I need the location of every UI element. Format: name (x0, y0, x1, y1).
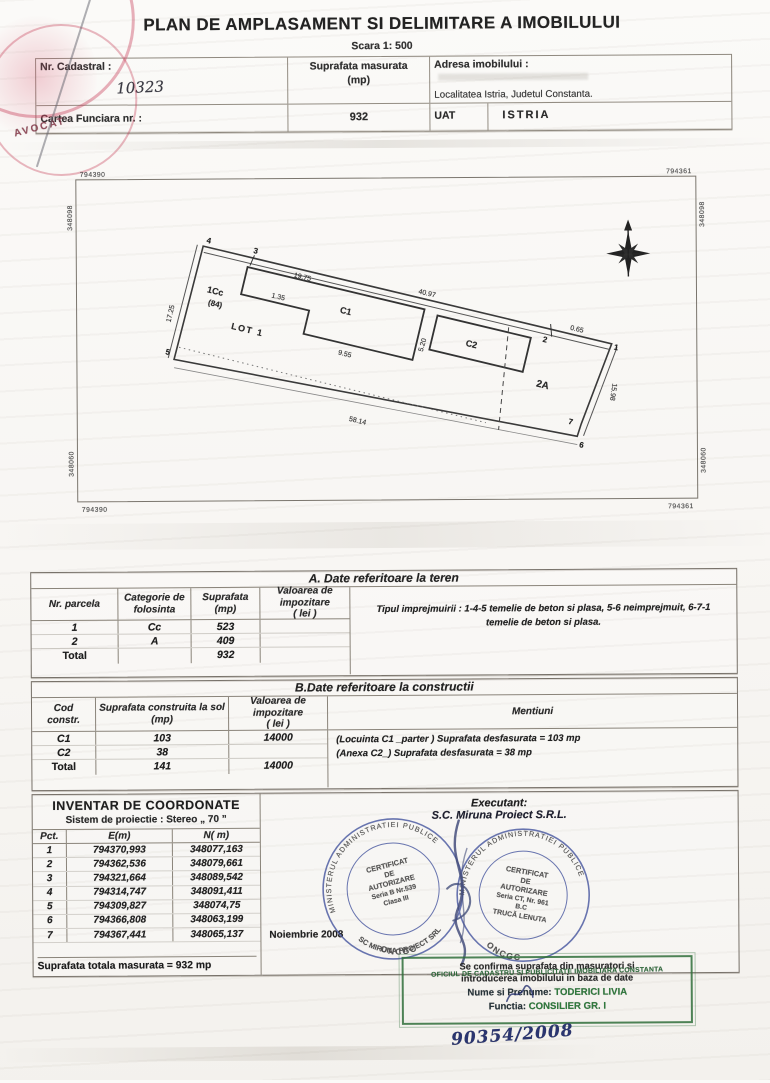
point-3: 3 (253, 246, 260, 256)
dim-right: 15.98 (608, 383, 618, 401)
grid-label-top-left-e: 794390 (80, 172, 106, 179)
cell: 1 (31, 621, 118, 635)
north-compass-icon (606, 219, 650, 276)
c2-label: C2 (465, 338, 479, 350)
grid-label-top-left-n: 348098 (67, 205, 74, 231)
lot-label: LOT 1 (230, 321, 264, 338)
header-col-cadastral: Nr. Cadastral : 10323 Cartea Funciara nr… (36, 58, 288, 134)
grid-label-bottom-left-e: 794390 (82, 507, 108, 514)
table-row-total: Total 932 (32, 647, 350, 664)
cell: 7 (33, 929, 67, 942)
fence-line-top (204, 252, 610, 349)
suprafata-value: 932 (288, 111, 429, 124)
scale-label: Scara 1: 500 (0, 38, 767, 55)
coord-row: 1794370,993348077,163 (33, 843, 260, 859)
dim-c1-right: 5.20 (418, 337, 429, 352)
cell: 794370,993 (67, 843, 173, 857)
coord-row: 3794321,664348089,542 (33, 871, 260, 887)
coordinates-panel: INVENTAR DE COORDONATE Sistem de proiect… (33, 794, 262, 976)
suprafata-unit: (mp) (288, 74, 429, 89)
projection-system: Sistem de proiectie : Stereo „ 70 ” (33, 812, 260, 830)
cell: Cc (118, 620, 191, 633)
cell: 38 (96, 745, 229, 759)
header-col-suprafata: Suprafata masurata (mp) 932 (288, 57, 430, 132)
nr-cadastral-label: Nr. Cadastral : (36, 58, 287, 76)
grid-label-bottom-left-n: 348060 (68, 451, 75, 477)
scan-streak (0, 138, 768, 151)
scan-streak (3, 1045, 603, 1063)
building-c2 (429, 316, 531, 372)
cell: 348077,163 (173, 843, 260, 857)
zone2-label: 2A (535, 379, 550, 393)
cell: 794321,664 (67, 872, 173, 886)
executant-panel: Executant: S.C. Miruna Proiect S.R.L. No… (261, 791, 739, 975)
cartea-funciara-label: Cartea Funciara nr. : (36, 105, 287, 128)
dim-line-bottom (174, 349, 577, 463)
table-row-total: Total 141 14000 (32, 758, 327, 775)
cell: 103 (96, 731, 229, 745)
cell: 523 (191, 620, 260, 633)
cell (119, 648, 192, 663)
coord-row: 6794366,808348063,199 (33, 914, 260, 930)
point-7: 7 (567, 417, 574, 427)
uat-label: UAT (430, 103, 488, 130)
table-a-header: Valoarea de impozitare ( lei ) (260, 587, 349, 619)
dim-near-p2: 0.65 (569, 325, 584, 335)
confirmation-name-line: Nume si Prenume: TODERICI LIVIA (404, 986, 691, 999)
cell: 3 (33, 872, 67, 885)
table-b: B.Date referitoare la constructii Cod co… (31, 677, 739, 791)
cell: 6 (33, 915, 67, 928)
uat-value: ISTRIA (488, 102, 731, 130)
dim-c1-width: 19.75 (293, 272, 312, 283)
c1-label: C1 (339, 305, 353, 317)
coord-row: 2794362,536348079,661 (33, 857, 260, 873)
function-value: CONSILIER GR. I (529, 1001, 606, 1012)
cell: 348079,661 (173, 857, 260, 871)
cell: 794366,808 (67, 914, 173, 928)
cell: C1 (32, 732, 96, 745)
cell: C2 (32, 746, 96, 759)
zone1-sub-label: (84) (207, 298, 223, 310)
table-b-header: Suprafata construita la sol (mp) (96, 697, 229, 731)
col-header: E(m) (67, 829, 173, 843)
grid-label-bottom-right-n: 348060 (700, 447, 707, 473)
fence-line-left (168, 244, 197, 358)
page-title: PLAN DE AMPLASAMENT SI DELIMITARE A IMOB… (0, 12, 767, 37)
stamp-text: B.C (515, 903, 528, 912)
table-b-mentiuni: (Locuinta C1 _parter ) Suprafata desfasu… (328, 728, 737, 761)
inner-dotted-line (179, 347, 487, 422)
building-c1 (235, 267, 424, 360)
cell: 348089,542 (173, 871, 260, 885)
cell: 14000 (229, 758, 327, 774)
suprafata-label: Suprafata masurata (288, 57, 429, 75)
faded-text-smudge (438, 73, 588, 81)
table-b-header: Valoarea de impozitare ( lei ) (229, 696, 327, 730)
parcel-group: 1Cc (84) LOT 1 C1 C2 2A 40.97 19.75 1.35… (153, 230, 631, 482)
plan-frame (76, 176, 698, 502)
cell: 2 (33, 858, 67, 871)
cell (260, 619, 349, 633)
mentiuni-line: (Anexa C2_) Suprafata desfasurata = 38 m… (336, 745, 729, 761)
confirmation-box: Se confirma suprafata din masuratori si … (402, 955, 693, 1025)
coord-row: 4794314,747348091,411 (33, 885, 260, 901)
cell: 1 (33, 844, 67, 857)
nr-cadastral-value: 10323 (116, 78, 164, 98)
grid-label-top-right-e: 794361 (666, 168, 692, 175)
cell: 2 (32, 635, 119, 649)
cell (261, 633, 350, 647)
col-header: N( m) (173, 829, 260, 843)
table-a-header: Suprafata (mp) (191, 588, 260, 619)
cell: 794367,441 (67, 928, 173, 942)
parcel-outline (174, 246, 612, 458)
registration-number-handwritten: 90354/2008 (450, 1021, 574, 1050)
point-6: 6 (578, 440, 585, 450)
cell (261, 647, 350, 663)
table-a-header: Categorie de folosinta (118, 588, 191, 619)
name-value: TODERICI LIVIA (554, 987, 627, 998)
cell: Total (32, 649, 119, 665)
col-header: Pct. (33, 830, 67, 843)
coord-row: 7794367,441348065,137 (33, 928, 260, 944)
table-a-header: Nr. parcela (31, 589, 118, 621)
site-plan: 794390 794361 794390 794361 348098 34809… (66, 164, 712, 521)
adresa-label: Adresa imobilului : (430, 55, 731, 73)
cell: 14000 (229, 730, 327, 744)
table-a: A. Date referitoare la teren Nr. parcela… (30, 568, 738, 678)
table-b-header-mentiuni: Mentiuni (328, 694, 737, 730)
point-5: 5 (165, 347, 172, 357)
point-4: 4 (206, 236, 213, 246)
total-area: Suprafata totala masurata = 932 mp (38, 956, 257, 972)
header-col-adresa: Adresa imobilului : Localitatea Istria, … (430, 55, 731, 131)
cell: 348091,411 (173, 885, 260, 899)
cell: Total (32, 760, 96, 775)
dim-bottom: 58.14 (348, 416, 367, 427)
grid-label-bottom-right-e: 794361 (668, 503, 694, 510)
adresa-value: Localitatea Istria, Judetul Constanta. (434, 89, 593, 101)
cell: 409 (192, 634, 261, 647)
zone1-label: 1Cc (206, 284, 224, 298)
cell: 348065,137 (173, 928, 260, 942)
table-a-mentiuni: Tipul imprejmuirii : 1-4-5 temelie de be… (349, 585, 737, 674)
lot-division-dashed-line (485, 327, 522, 429)
coord-row: 5794309,827348074,75 (33, 900, 260, 916)
dim-left: 17.25 (166, 304, 177, 323)
cell: 5 (33, 901, 67, 914)
point-2: 2 (542, 335, 549, 345)
scan-streak (0, 520, 770, 551)
cell: 348074,75 (173, 900, 260, 914)
cell: 4 (33, 887, 67, 900)
bottom-section: INVENTAR DE COORDONATE Sistem de proiect… (32, 790, 740, 977)
dim-c1-bottom: 9.55 (337, 349, 352, 359)
cell: 794314,747 (67, 886, 173, 900)
cell: 348063,199 (173, 914, 260, 928)
site-plan-svg: 794390 794361 794390 794361 348098 34809… (66, 164, 712, 516)
small-signature (503, 983, 537, 1005)
cell: 794309,827 (67, 900, 173, 914)
table-b-header: Cod constr. (32, 698, 96, 731)
cell: 794362,536 (67, 857, 173, 871)
coordinates-title: INVENTAR DE COORDONATE (33, 794, 260, 813)
cell: 141 (96, 759, 229, 775)
header-table: Nr. Cadastral : 10323 Cartea Funciara nr… (35, 54, 732, 134)
point-1: 1 (613, 343, 620, 353)
cell: A (119, 634, 192, 647)
authorization-stamps: MINISTERUL ADMINISTRATIEI PUBLICE CERTIF… (261, 791, 741, 977)
scanned-document-page: PLAN DE AMPLASAMENT SI DELIMITARE A IMOB… (0, 0, 770, 1082)
oncgc-stamp-left: MINISTERUL ADMINISTRATIEI PUBLICE CERTIF… (308, 804, 478, 974)
grid-label-top-right-n: 348098 (699, 201, 706, 227)
cell: 932 (192, 648, 261, 663)
cell (229, 744, 327, 758)
coordinates-header-row: Pct. E(m) N( m) (33, 829, 260, 844)
confirmation-function-line: Functia: CONSILIER GR. I (404, 1000, 691, 1013)
